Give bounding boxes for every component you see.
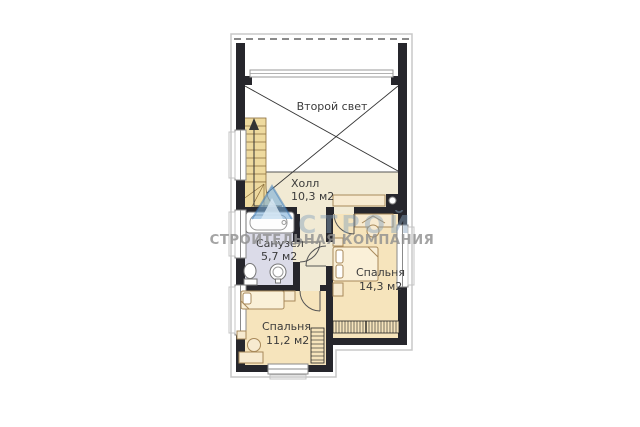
floor-plan-page: Второй свет Холл 10,3 м2 Санузел 5,7 м2 … xyxy=(0,0,640,427)
room-label-bedroom-right: Спальня xyxy=(356,266,405,279)
dresser xyxy=(333,283,343,296)
bed-left xyxy=(241,291,284,309)
room-label-second-light: Второй свет xyxy=(297,100,368,113)
top-glazing-window xyxy=(250,70,393,77)
floor-plan-svg: Второй свет Холл 10,3 м2 Санузел 5,7 м2 … xyxy=(0,0,640,427)
watermark-company-text: СТРОИТЕЛЬНАЯ КОМПАНИЯ xyxy=(210,233,435,248)
small-cabinet xyxy=(237,331,246,339)
wardrobe-right xyxy=(333,321,399,333)
desk-left xyxy=(239,352,263,363)
room-label-bedroom-left: Спальня xyxy=(262,320,311,333)
hall-cabinet xyxy=(386,194,399,207)
toilet xyxy=(244,264,257,286)
hall-shelf xyxy=(333,195,385,206)
room-area-bathroom: 5,7 м2 xyxy=(261,250,297,263)
nightstand-left xyxy=(284,291,295,301)
room-label-hall: Холл xyxy=(291,177,319,190)
room-area-bedroom-left: 11,2 м2 xyxy=(266,334,309,347)
room-area-hall: 10,3 м2 xyxy=(291,190,334,203)
wardrobe-left xyxy=(311,328,324,363)
room-area-bedroom-right: 14,3 м2 xyxy=(359,280,402,293)
chair-left xyxy=(248,339,261,352)
